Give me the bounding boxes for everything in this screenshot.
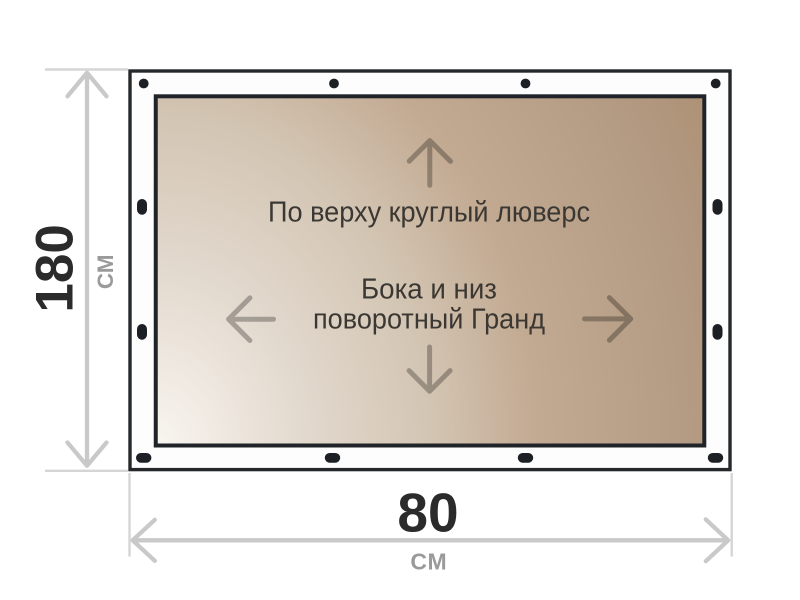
svg-text:80: 80 [397,482,458,544]
svg-text:поворотный Гранд: поворотный Гранд [313,304,545,336]
svg-text:Бока и низ: Бока и низ [361,274,497,306]
svg-text:По верху круглый люверс: По верху круглый люверс [268,197,590,229]
svg-text:СМ: СМ [410,549,447,575]
svg-text:180: 180 [26,224,85,312]
svg-text:СМ: СМ [93,254,118,289]
